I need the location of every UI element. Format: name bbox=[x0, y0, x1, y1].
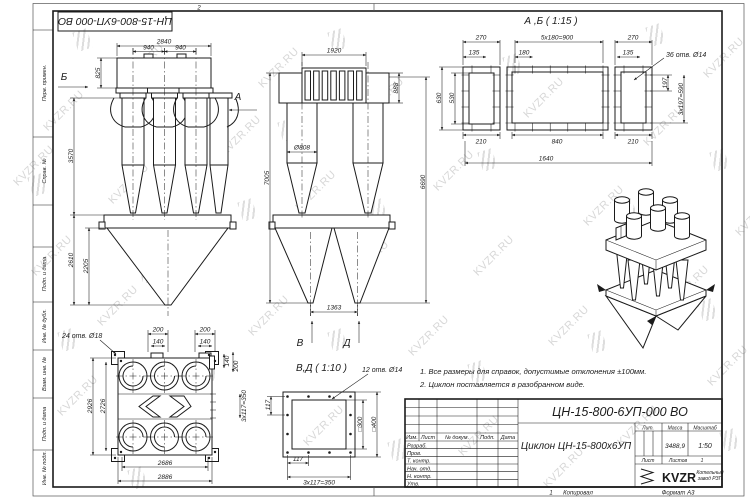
dim-ab-135-left: 135 bbox=[469, 50, 480, 57]
dim-plan-350: 3x117=350 bbox=[241, 390, 248, 422]
view-ab-flanges: А ,Б ( 1:15 ) bbox=[436, 16, 706, 166]
dim-ab-197: 197 bbox=[662, 77, 669, 88]
tb-lit-label: Лит. bbox=[641, 426, 654, 432]
tb-row-razrab: Разраб. bbox=[407, 444, 427, 450]
dim-side-outlet-pitch: 1363 bbox=[327, 305, 342, 312]
side-label-podp-data-2: Подп. и дата bbox=[42, 407, 48, 441]
note-line-2: 2. Циклон поставляется в разобранном вид… bbox=[419, 380, 585, 389]
label-ab-holes: 36 отв. Ø14 bbox=[666, 52, 706, 59]
view-side: 1920 888 7005 6690 Ø808 1363 В Д bbox=[264, 48, 430, 350]
tb-row-utv: Утв. bbox=[406, 482, 420, 488]
tb-sheet-label: Лист bbox=[641, 458, 655, 464]
dim-front-cone-height: 2205 bbox=[83, 258, 90, 274]
dim-ab-135-right: 135 bbox=[623, 50, 634, 57]
view-arrow-a: А bbox=[234, 92, 242, 103]
side-label-sprav: Справ. № bbox=[42, 158, 48, 183]
dim-side-total-height: 7005 bbox=[264, 170, 271, 185]
view-arrow-b: Б bbox=[61, 72, 68, 83]
dim-front-pitch2: 940 bbox=[175, 45, 186, 52]
tb-sheets-label: Листов bbox=[668, 458, 688, 464]
tb-col-list: Лист bbox=[420, 435, 436, 441]
tb-logo-text: KVZR bbox=[662, 471, 696, 485]
side-label-perv-primen: Перв. примен. bbox=[42, 65, 48, 102]
dim-ab-210-left: 210 bbox=[475, 139, 487, 146]
notes: 1. Все размеры для справок, допустимые о… bbox=[419, 367, 646, 389]
side-label-inv-dubl: Инв. № дубл. bbox=[42, 309, 48, 343]
tb-col-podp: Подп. bbox=[480, 435, 495, 441]
dim-vd-117-bottom: 117 bbox=[293, 456, 304, 463]
side-label-podp-data-1: Подп. и дата bbox=[42, 257, 48, 291]
drawing-sheet: KVZR.RUKVZR.RUKVZR.RUKVZR.RUKVZR.RUKVZR.… bbox=[0, 0, 750, 500]
dim-vd-400: □400 bbox=[371, 416, 378, 431]
dim-plan-200-2: 200 bbox=[199, 327, 211, 334]
dim-vd-117-left: 117 bbox=[265, 399, 272, 410]
dim-ab-1640: 1640 bbox=[539, 156, 554, 163]
note-line-1: 1. Все размеры для справок, допустимые о… bbox=[420, 367, 646, 376]
dim-ab-900: 5x180=900 bbox=[541, 35, 574, 42]
view-front: 2840 940 940 825 3570 2610 2205 Б А bbox=[58, 39, 257, 317]
dim-side-width: 1920 bbox=[327, 48, 342, 55]
tb-scale-value: 1:50 bbox=[698, 443, 712, 450]
dim-front-inlet-height: 825 bbox=[95, 67, 102, 78]
tb-row-nachotd: Нач. отд. bbox=[407, 466, 432, 472]
spring-logo-icon bbox=[641, 469, 653, 484]
tb-row-prov: Пров. bbox=[407, 451, 422, 457]
title-block: Изм. Лист № докум. Подп. Дата Разраб. Пр… bbox=[405, 399, 724, 488]
tb-scale-label: Масштаб bbox=[693, 426, 717, 432]
dim-ab-840: 840 bbox=[552, 139, 563, 146]
tb-mass-label: Масса bbox=[668, 426, 683, 432]
tb-row-tkontr: Т. контр. bbox=[407, 459, 431, 465]
zone-top-label: 2 bbox=[196, 6, 201, 12]
dim-plan-2686: 2686 bbox=[157, 460, 173, 467]
dim-ab-210-right: 210 bbox=[627, 139, 639, 146]
view-isometric bbox=[597, 189, 715, 348]
dim-front-body-height: 3570 bbox=[68, 148, 75, 163]
tb-mass-value: 3488,9 bbox=[665, 443, 685, 450]
doc-number-top: ЦН-15-800-6УП-000 ВО bbox=[58, 15, 172, 27]
dim-ab-630: 630 bbox=[436, 92, 443, 103]
dim-vd-300: □300 bbox=[357, 416, 364, 431]
dim-side-flange: 888 bbox=[393, 82, 400, 93]
dim-vd-350: 3x117=350 bbox=[303, 480, 335, 487]
zone-bottom-label: 1 bbox=[549, 491, 552, 497]
dim-front-width: 2840 bbox=[156, 39, 172, 46]
dim-plan-2926: 2926 bbox=[87, 398, 94, 414]
tb-doc-number: ЦН-15-800-6УП-000 ВО bbox=[552, 405, 688, 419]
dim-plan-140-1: 140 bbox=[153, 339, 164, 346]
label-vd-holes: 12 отв. Ø14 bbox=[362, 367, 402, 374]
side-label-inv-podl: Инв. № подл. bbox=[42, 451, 48, 485]
side-label-vzam-inv: Взам. инв. № bbox=[42, 357, 48, 391]
dim-ab-270-left: 270 bbox=[475, 35, 487, 42]
tb-col-dokum: № докум. bbox=[445, 435, 469, 441]
dim-plan-140-2: 140 bbox=[200, 339, 211, 346]
view-vd-flange: В,Д ( 1:10 ) 12 отв. Ø14 117 bbox=[265, 363, 402, 487]
tb-logo-caption-2: завод РЗП bbox=[697, 476, 723, 482]
view-arrow-v: В bbox=[297, 338, 304, 349]
copied-label: Копировал bbox=[563, 491, 593, 497]
drawing-canvas: 2 1 Копировал Формат А3 Перв. примен. Сп… bbox=[0, 0, 750, 500]
tb-row-nkontr: Н. контр. bbox=[407, 474, 432, 480]
dim-ab-270-right: 270 bbox=[627, 35, 639, 42]
dim-plan-200-right: 200 bbox=[233, 360, 240, 372]
view-arrow-d: Д bbox=[342, 338, 350, 349]
view-plan: 24 отв. Ø18 200 140 200 140 140 200 2926… bbox=[61, 327, 248, 485]
format-label: Формат А3 bbox=[662, 491, 695, 497]
dim-plan-2886: 2886 bbox=[157, 474, 173, 481]
dim-ab-180: 180 bbox=[519, 50, 530, 57]
dim-side-right-height: 6690 bbox=[420, 174, 427, 189]
tb-sheets-value: 1 bbox=[701, 458, 704, 464]
tb-logo-caption-1: Котельный bbox=[696, 469, 723, 476]
dim-ab-590: 3x197=590 bbox=[678, 82, 685, 115]
view-vd-title: В,Д ( 1:10 ) bbox=[296, 363, 347, 374]
tb-col-izm: Изм. bbox=[406, 435, 418, 441]
tb-name: Циклон ЦН-15-800х6УП bbox=[521, 441, 632, 452]
view-ab-title: А ,Б ( 1:15 ) bbox=[523, 16, 577, 27]
tb-col-data: Дата bbox=[500, 435, 516, 441]
dim-front-pitch1: 940 bbox=[143, 45, 154, 52]
label-plan-holes: 24 отв. Ø18 bbox=[61, 333, 102, 340]
dim-ab-530: 530 bbox=[449, 92, 456, 103]
dim-plan-2726: 2726 bbox=[100, 398, 107, 414]
dim-plan-140-right: 140 bbox=[224, 355, 231, 366]
dim-side-pipe-diameter: Ø808 bbox=[293, 145, 310, 152]
dim-front-hopper-height: 2610 bbox=[68, 252, 75, 268]
dim-plan-200-1: 200 bbox=[152, 327, 164, 334]
